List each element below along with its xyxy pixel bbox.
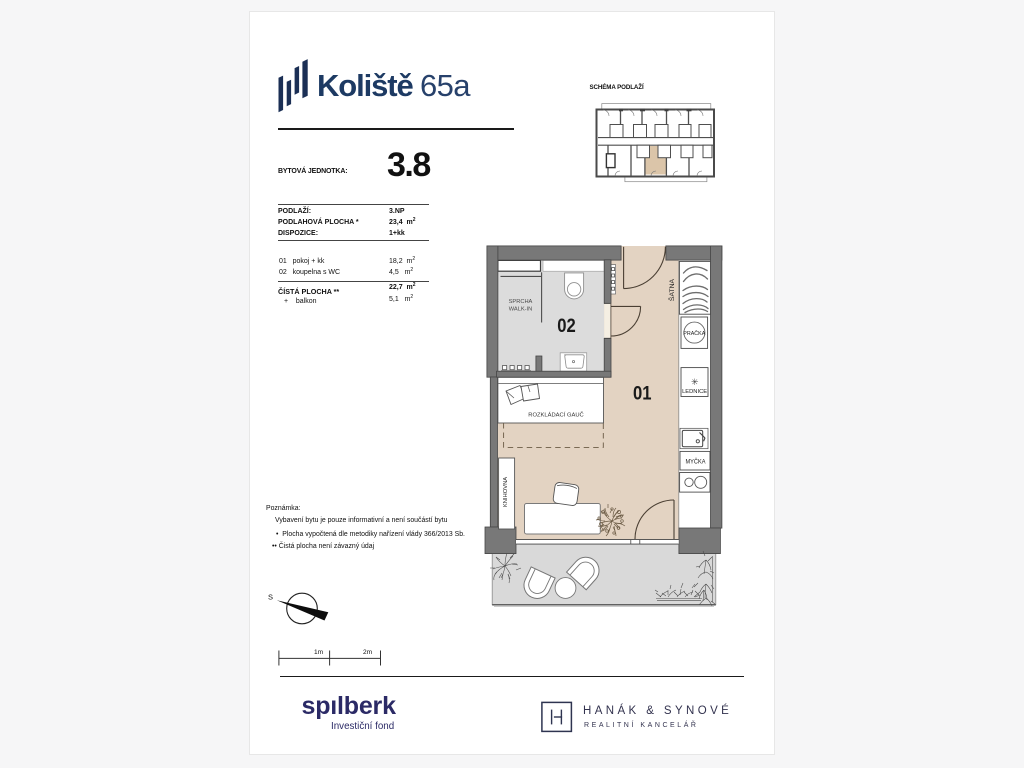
svg-text:01: 01 <box>633 384 652 405</box>
svg-text:2m: 2m <box>363 649 373 656</box>
svg-text:SPRCHA: SPRCHA <box>509 299 533 305</box>
svg-text:KNIHOVNA: KNIHOVNA <box>503 477 509 507</box>
svg-text:ŠATNA: ŠATNA <box>667 278 676 301</box>
svg-text:1m: 1m <box>314 649 324 656</box>
svg-text:S: S <box>268 593 273 602</box>
svg-text:MYČKA: MYČKA <box>686 458 706 465</box>
svg-text:PRAČKA: PRAČKA <box>683 330 705 337</box>
svg-text:WALK-IN: WALK-IN <box>509 306 533 312</box>
svg-text:✳: ✳ <box>691 377 699 387</box>
svg-text:LEDNICE: LEDNICE <box>682 389 707 395</box>
svg-text:02: 02 <box>557 315 576 337</box>
svg-text:ROZKLÁDACÍ GAUČ: ROZKLÁDACÍ GAUČ <box>528 412 583 419</box>
